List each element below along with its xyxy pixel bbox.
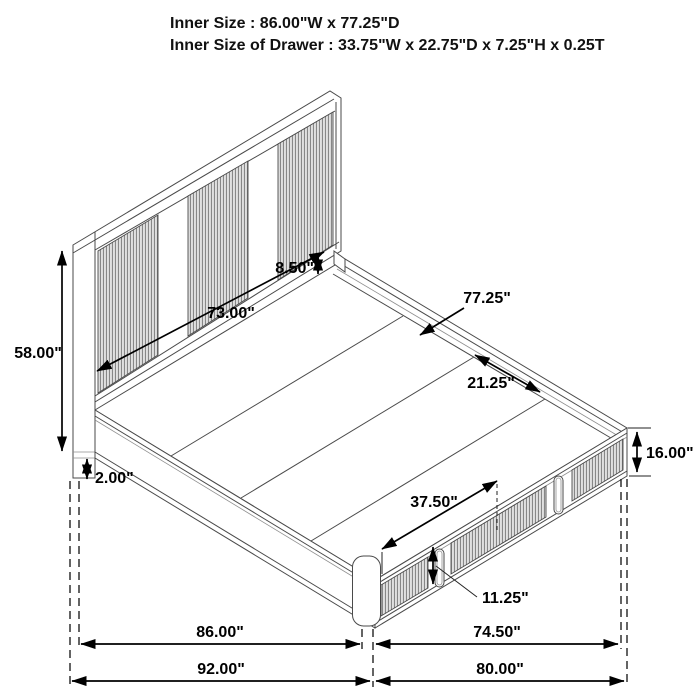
bed-isometric-diagram: Inner Size : 86.00"W x 77.25"D Inner Siz… xyxy=(0,0,700,700)
drawer-handle-pull xyxy=(554,476,563,514)
dim-label-slat-width: 21.25" xyxy=(467,375,515,392)
inner-size-label: Inner Size : 86.00"W x 77.25"D xyxy=(170,15,400,32)
dim-label-headboard-height: 58.00" xyxy=(14,345,62,362)
dim-label-outer-width: 92.00" xyxy=(197,661,245,678)
dim-label-inner-depth: 77.25" xyxy=(463,290,511,307)
dim-label-drawer-height: 11.25" xyxy=(482,590,529,607)
corner-leg xyxy=(353,556,381,626)
dim-label-headboard-gap: 8.50" xyxy=(275,260,314,277)
dim-label-platform-height: 16.00" xyxy=(646,445,694,462)
dim-label-foot-outer-width: 80.00" xyxy=(476,661,524,678)
dim-label-leg-reveal: 2.00" xyxy=(95,470,134,487)
inner-drawer-size-label: Inner Size of Drawer : 33.75"W x 22.75"D… xyxy=(170,37,605,54)
dim-label-inner-width: 86.00" xyxy=(196,624,244,641)
drawer-handle xyxy=(554,476,563,514)
bed-dimension-diagram-page: Inner Size : 86.00"W x 77.25"D Inner Siz… xyxy=(0,0,700,700)
drawer-handle-pull xyxy=(435,549,444,587)
dim-label-drawer-width: 37.50" xyxy=(410,494,458,511)
dim-label-headboard-width: 73.00" xyxy=(207,305,255,322)
drawer-handle xyxy=(435,549,444,587)
dim-label-foot-inner-width: 74.50" xyxy=(473,624,521,641)
